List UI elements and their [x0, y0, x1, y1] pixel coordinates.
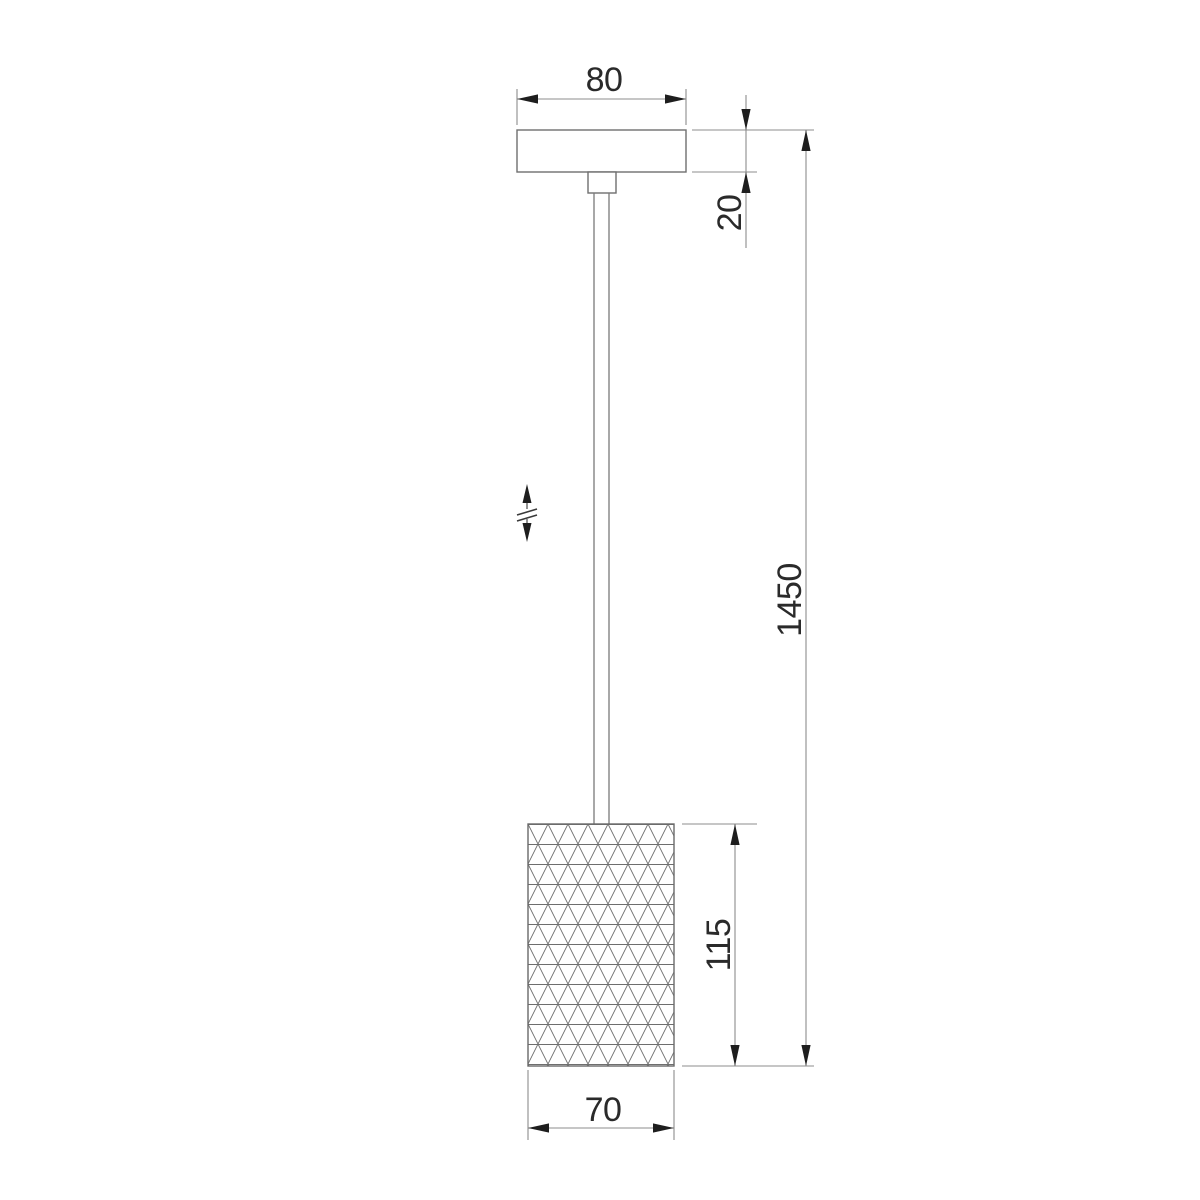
dimension-canopy-height: 20: [692, 95, 814, 248]
dimension-overall-height: 1450: [771, 130, 811, 1066]
dimension-value-overall-height: 1450: [771, 563, 809, 637]
canopy-neck: [588, 172, 616, 193]
arrowhead-right-icon: [665, 94, 686, 103]
arrowhead-down-icon: [730, 1045, 739, 1066]
dimension-value-shade-height: 115: [700, 919, 738, 972]
dimension-shade-width: 70: [528, 1070, 674, 1140]
height-adjustable-icon: [517, 484, 537, 542]
arrowhead-left-icon: [528, 1123, 549, 1132]
dimension-canopy-width: 80: [517, 61, 686, 125]
arrowhead-down-icon: [523, 523, 532, 542]
arrowhead-right-icon: [653, 1123, 674, 1132]
dimension-value-shade-width: 70: [585, 1091, 622, 1129]
dimension-shade-height: 115: [682, 824, 814, 1066]
pendant-lamp-dimension-drawing: 80 20 1450 115: [0, 0, 1200, 1200]
arrowhead-left-icon: [517, 94, 538, 103]
dimension-value-canopy-width: 80: [586, 61, 623, 99]
lamp-shade-knurled: [528, 824, 674, 1066]
arrowhead-up-icon: [741, 172, 750, 193]
arrowhead-up-icon: [801, 130, 810, 151]
arrowhead-up-icon: [730, 824, 739, 845]
arrowhead-down-icon: [801, 1045, 810, 1066]
arrowhead-down-icon: [741, 109, 750, 130]
arrowhead-up-icon: [523, 484, 532, 503]
ceiling-canopy: [517, 130, 686, 172]
lamp-object: [517, 130, 686, 1066]
dimension-value-canopy-height: 20: [711, 195, 749, 232]
technical-drawing-canvas: 80 20 1450 115: [0, 0, 1200, 1200]
break-mark-upper: [517, 509, 537, 515]
